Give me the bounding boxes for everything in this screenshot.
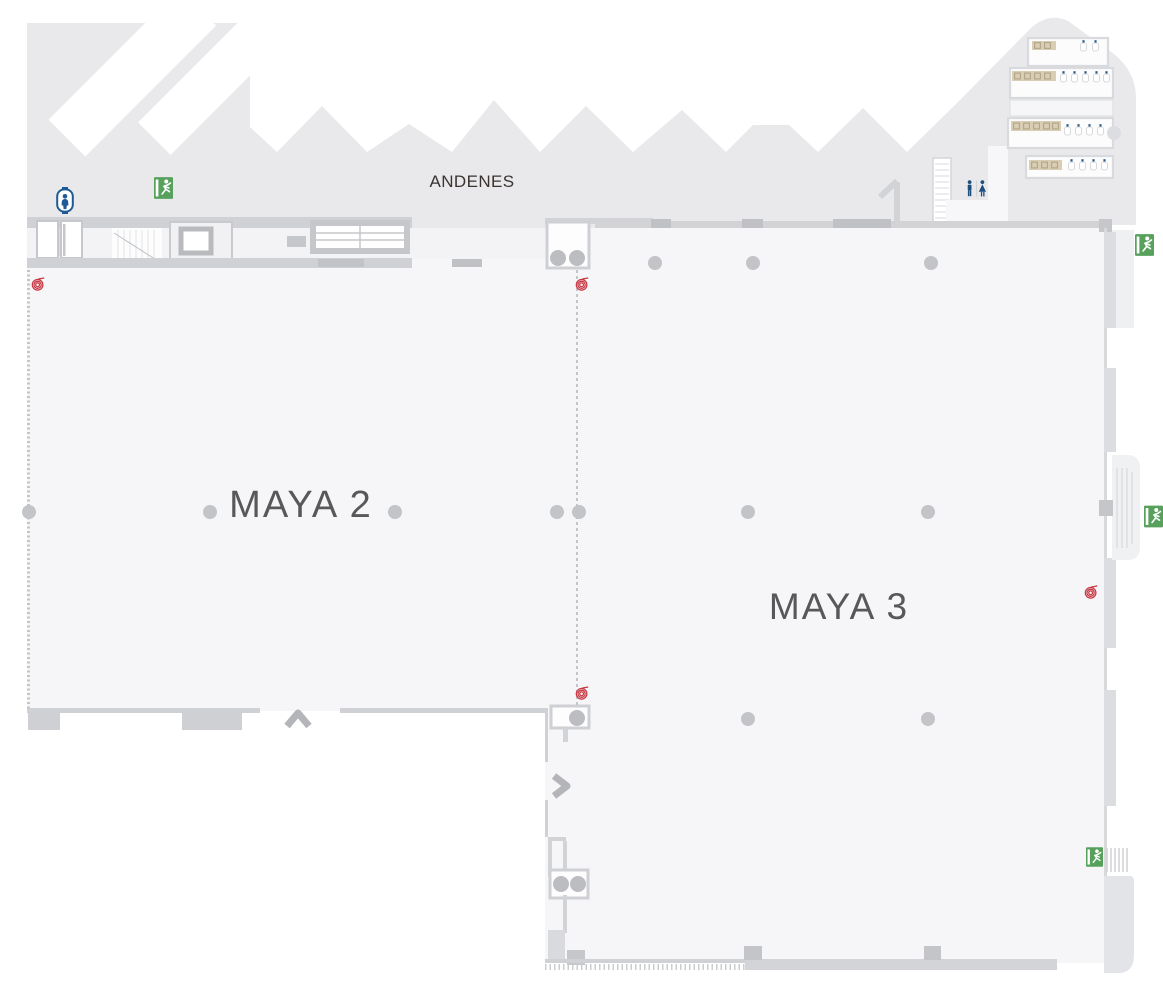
entrance-chevrons bbox=[287, 713, 567, 796]
emergency-exit-icon bbox=[1135, 234, 1154, 256]
floor-plan-canvas: ANDENES MAYA 2 MAYA 3 bbox=[0, 0, 1163, 991]
andenes-dock-area bbox=[27, 0, 1136, 228]
emergency-exit-icon bbox=[154, 177, 173, 199]
glass-door bbox=[37, 221, 58, 258]
maya3-hall[interactable] bbox=[545, 228, 1105, 963]
corridor-strip bbox=[27, 228, 545, 259]
maya2-hall[interactable] bbox=[27, 259, 575, 711]
elevator-icon bbox=[57, 187, 73, 214]
restrooms-icon bbox=[968, 180, 986, 196]
emergency-exit-icon bbox=[1086, 847, 1103, 867]
vestibule-bump bbox=[1112, 455, 1140, 560]
chevron-up-icon bbox=[287, 713, 309, 726]
floor-plan-drawing bbox=[0, 0, 1163, 991]
emergency-exit-icon bbox=[1144, 506, 1163, 528]
door bbox=[1099, 500, 1113, 516]
